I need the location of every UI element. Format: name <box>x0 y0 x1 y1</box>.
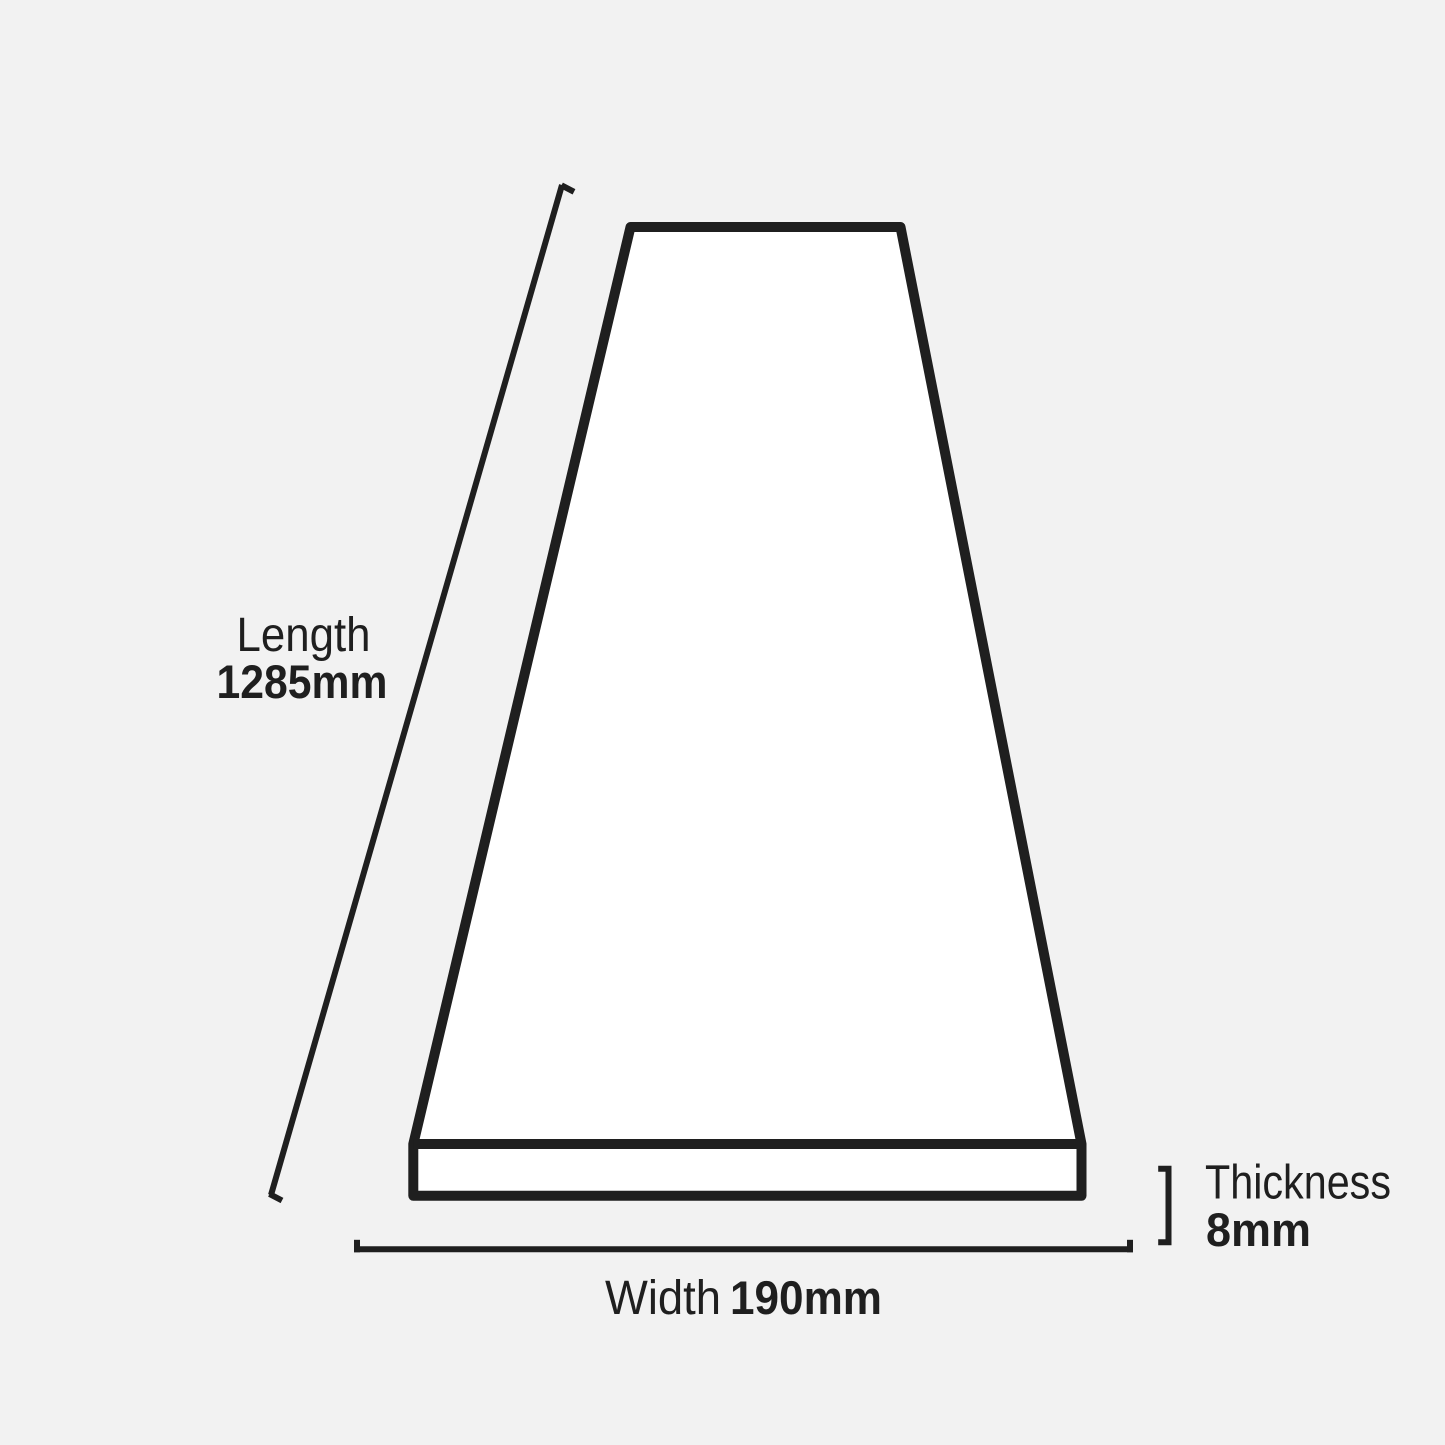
svg-text:1285mm: 1285mm <box>217 655 388 708</box>
svg-text:8mm: 8mm <box>1206 1203 1311 1256</box>
svg-text:Width: Width <box>605 1272 721 1325</box>
svg-text:Thickness: Thickness <box>1205 1156 1391 1209</box>
svg-text:190mm: 190mm <box>730 1271 882 1324</box>
